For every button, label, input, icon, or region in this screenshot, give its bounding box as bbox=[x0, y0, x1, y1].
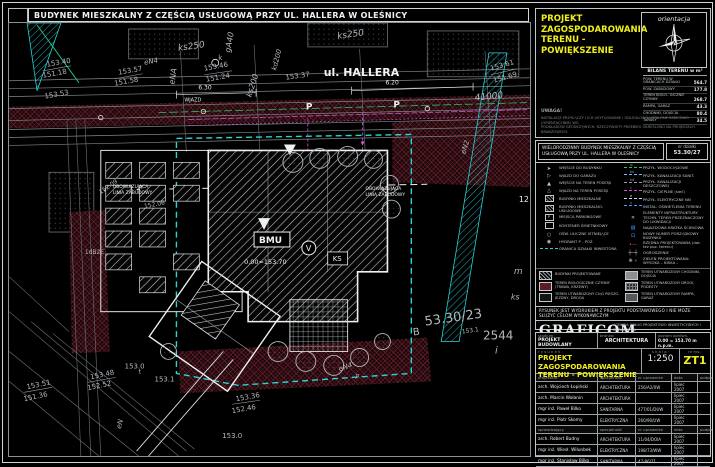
legend-item-label: ZIELEŃ PROJEKTOWANA: WYSOKA – NISKA – bbox=[643, 257, 707, 265]
legend-item: cPRZYŁ. CIEPLNE (sieć) bbox=[623, 189, 707, 196]
legend-column-left: ➤WEJŚCIE DO BUDYNKU▷WJAZD DO GARAŻU▲WEJŚ… bbox=[539, 165, 623, 266]
square-open-icon bbox=[539, 222, 559, 231]
compass-rose-icon bbox=[654, 23, 694, 63]
people-header-row: projektant specjalność nr uprawnień data… bbox=[536, 374, 710, 382]
map-label: 153.51 bbox=[26, 378, 51, 391]
legend-item: ✕ELEMENTY INFRASTRUKTURY TECHN. TEREN PR… bbox=[623, 211, 707, 224]
legend-item-label: PRZYŁ. KANALIZACJI DESZCZOWEJ bbox=[643, 180, 707, 188]
map-label: OBOWIĄZUJĄCA bbox=[366, 186, 403, 192]
level-cell: poziom porówn. 0.00 = 153.70 m n.p.m. bbox=[656, 333, 710, 348]
line-icon: kd bbox=[623, 181, 643, 187]
map-label: 153.0 bbox=[222, 432, 242, 440]
x-mark-icon: ✕ bbox=[623, 215, 643, 221]
map-label: eN bbox=[115, 418, 125, 430]
square-p-icon: P bbox=[539, 214, 559, 221]
legend-item: •—RZĘDNA PROJEKTOWANA (dot. też poz. ter… bbox=[623, 241, 707, 249]
legend-item: ○OŚW. ULICZNE ISTNIEJĄCE bbox=[539, 231, 623, 238]
legend-item-label: GRANICA DZIAŁKI INWESTORA bbox=[559, 247, 617, 251]
map-label: 153.1 bbox=[155, 375, 175, 383]
dimension-lines bbox=[176, 83, 473, 99]
circle-hydrant-icon: ◉ bbox=[539, 239, 559, 245]
map-label: V bbox=[306, 244, 312, 253]
legend-item: BUDYNKI MIESZKALNE bbox=[539, 195, 623, 204]
legend-item-label: PRZYŁ. CIEPLNE (sieć) bbox=[643, 190, 685, 194]
stadium-cell: stadium: PROJEKT BUDOWLANY bbox=[536, 333, 598, 348]
swatch-maroon bbox=[539, 282, 552, 291]
swatch-dark bbox=[625, 293, 638, 302]
legend-building-name: WIELORODZINNY BUDYNEK MIESZKALNY Z CZĘŚC… bbox=[538, 143, 664, 160]
map-label: B bbox=[412, 327, 420, 339]
map-label: eNA bbox=[168, 68, 179, 85]
legend-column-right: wPRZYŁ. WODOCIĄGOWEksPRZYŁ. KANALIZACJI … bbox=[623, 165, 707, 266]
triangle-open-icon: △ bbox=[539, 188, 559, 194]
map-label: m bbox=[514, 267, 523, 277]
legend-item: GRANICA DZIAŁKI INWESTORA bbox=[539, 246, 623, 253]
legend-item-label: NAJAZDOWA KRATKA ŚCIEKOWA bbox=[643, 226, 704, 230]
legend-item-label: KONTENER ŚMIETNIKOWY bbox=[559, 224, 608, 228]
panel-title-block: stadium: PROJEKT BUDOWLANY branża: ARCHI… bbox=[535, 332, 711, 457]
sheet-title: BUDYNEK MIESZKALNY Z CZĘŚCIĄ USŁUGOWĄ PR… bbox=[34, 11, 407, 20]
legend-item-label: MIEJSCA PARKINGOWE bbox=[559, 215, 602, 219]
map-label: 12 bbox=[519, 195, 529, 204]
map-label: 153.53 bbox=[44, 89, 69, 101]
legend-item-label: RZĘDNA PROJEKTOWANA (dot. też poz. teren… bbox=[643, 241, 707, 249]
legend-item-label: PRZYŁ. ELEKTRYCZNE NN bbox=[643, 198, 691, 202]
fence-icon: ┼─┼ bbox=[623, 250, 643, 256]
legend-item: ➤WEJŚCIE DO BUDYNKU bbox=[539, 165, 623, 172]
map-label: BMU bbox=[259, 236, 282, 246]
note-title: UWAGA! bbox=[541, 109, 562, 114]
line-icon: e bbox=[623, 197, 643, 203]
map-label: WJAZD bbox=[184, 98, 201, 104]
legend-item-label: INSTAL. OŚWIETLENIA TERENU bbox=[643, 205, 701, 209]
swatch-outline bbox=[539, 293, 552, 302]
orientation-label: orientacja bbox=[642, 15, 706, 23]
arrow-filled-icon: ➤ bbox=[539, 166, 559, 172]
map-label: 153.48 bbox=[90, 368, 115, 381]
map-label: 151.18 bbox=[42, 68, 67, 80]
map-label: 2544 bbox=[483, 329, 513, 343]
legend-item: ❋ ∘ZIELEŃ PROJEKTOWANA: WYSOKA – NISKA – bbox=[623, 257, 707, 265]
legend-item-label: WEJŚCIE NA TEREN POSESJI bbox=[559, 181, 611, 185]
greenery-icon: ❋ ∘ bbox=[623, 258, 643, 264]
surface-swatch-item: TEREN UTWARDZONY DROGI, PODESTY bbox=[625, 282, 707, 291]
map-label: gA40 bbox=[223, 31, 235, 53]
circle-lamp-icon: ○ bbox=[539, 232, 559, 238]
line-icon: c bbox=[623, 189, 643, 195]
map-label: ul. HALLERA bbox=[324, 66, 400, 79]
title-block-person-row: mgr inż. Paweł BilkoSANITARNA477/01/DUWl… bbox=[536, 404, 710, 415]
map-label: P bbox=[306, 103, 313, 113]
plot-number-box: nr działki53.30/27 bbox=[666, 143, 708, 160]
legend-item-label: NOWY NUMER PORZĄDKOWY BUDYNKU bbox=[643, 232, 707, 240]
surface-swatch-item: TEREN UTWARDZONY CHODNIKI, DOJŚCIA bbox=[625, 271, 707, 280]
legend-item-label: BUDYNKI MIESZKALNO-USŁUGOWE bbox=[559, 205, 623, 213]
map-label: 1dB2E bbox=[85, 249, 104, 256]
grate-icon: ▨ bbox=[623, 225, 643, 231]
terrace-grid bbox=[290, 300, 348, 352]
cyan-dash-icon bbox=[539, 247, 559, 253]
orientation-box: orientacja bbox=[641, 12, 707, 68]
legend-item-label: OŚW. ULICZNE ISTNIEJĄCE bbox=[559, 232, 609, 236]
legend-item: KONTENER ŚMIETNIKOWY bbox=[539, 222, 623, 231]
legend-swatches: BUDYNKI PROJEKTOWANETEREN UTWARDZONY CHO… bbox=[536, 268, 710, 304]
balance-header: BILANS TERENU w m² bbox=[643, 69, 707, 76]
map-label: ks200 bbox=[244, 73, 260, 99]
map-label: 153.46 bbox=[203, 61, 228, 73]
legend-item: ⊡NOWY NUMER PORZĄDKOWY BUDYNKU bbox=[623, 232, 707, 240]
map-label: OBOWIĄZUJĄCA bbox=[113, 184, 150, 190]
drawing-number-cell: nr rys.: ZT1 bbox=[680, 349, 710, 373]
title-block-person-row: arch. Robert BudnyARCHITEKTURA11/04/DOIA… bbox=[536, 434, 710, 445]
square-hatch-icon bbox=[539, 205, 559, 214]
square-hatch-icon bbox=[539, 195, 559, 204]
legend-item: ▷WJAZD DO GARAŻU bbox=[539, 173, 623, 180]
legend-header: WIELORODZINNY BUDYNEK MIESZKALNY Z CZĘŚC… bbox=[536, 141, 710, 163]
legend-item-label: WJAZD NA TEREN POSESJI bbox=[559, 189, 608, 193]
map-label: 6.30 bbox=[198, 85, 211, 92]
note-block: UWAGA! INSTALACJE PRZYŁĄCZY I ICH USYTUO… bbox=[541, 97, 707, 134]
legend-item: △WJAZD NA TEREN POSESJI bbox=[539, 188, 623, 195]
arrow-open-icon: ▷ bbox=[539, 173, 559, 179]
map-label: eN4 bbox=[144, 56, 159, 66]
legend-item-label: WEJŚCIE DO BUDYNKU bbox=[559, 166, 602, 170]
title-block-person-row: arch. Wojciech ŁopińskiARCHITEKTURA256/A… bbox=[536, 382, 710, 393]
map-label: k bbox=[218, 54, 222, 62]
legend-item-label: PRZYŁ. WODOCIĄGOWE bbox=[643, 166, 688, 170]
site-plan-drawing: ks250ks250gA40kd200eNAks200eN4153.40151.… bbox=[8, 22, 531, 457]
title-block-person-row: arch. Marcin WołaninARCHITEKTURAlipiec 2… bbox=[536, 393, 710, 404]
map-label: 153.37 bbox=[285, 70, 310, 81]
map-label: 153.0 bbox=[125, 362, 145, 370]
map-label: 6.20 bbox=[385, 80, 398, 87]
swatch-hatch bbox=[539, 271, 552, 280]
disclaimer-text: RYSUNEK JEST WYDRUKIEM Z PROJEKTU PODSTA… bbox=[536, 306, 710, 321]
legend-item: wPRZYŁ. WODOCIĄGOWE bbox=[623, 165, 707, 172]
legend-item-label: ELEMENTY INFRASTRUKTURY TECHN. TEREN PRZ… bbox=[643, 211, 707, 224]
map-label: p bbox=[355, 372, 360, 379]
legend-item: ◉HYDRANT P - POŻ. bbox=[539, 239, 623, 246]
map-label: 151.24 bbox=[205, 71, 231, 83]
map-label: KS bbox=[333, 255, 343, 263]
map-label: LINIA ZABUDOWY bbox=[113, 190, 153, 196]
cad-site-plan-sheet: { "sheet_title": "BUDYNEK MIESZKALNY Z C… bbox=[0, 0, 715, 465]
balance-row: POW. TERENU W GRANICACH DZIAŁKI564.7 bbox=[643, 77, 707, 87]
legend-item-label: BUDYNKI MIESZKALNE bbox=[559, 197, 601, 201]
scale-cell: s k a l a : 1:250 bbox=[642, 349, 680, 373]
map-label: 153.36 bbox=[235, 391, 260, 403]
number-icon: ⊡ bbox=[623, 233, 643, 239]
map-label: 153.1 bbox=[461, 326, 479, 335]
swatch-checker bbox=[625, 282, 638, 291]
drawing-title: PROJEKT ZAGOSPODAROWANIA TERENU - POWIĘK… bbox=[541, 14, 651, 57]
surface-swatch-item: BUDYNKI PROJEKTOWANE bbox=[539, 271, 621, 280]
sheet-title-bar: BUDYNEK MIESZKALNY Z CZĘŚCIĄ USŁUGOWĄ PR… bbox=[28, 8, 529, 22]
swatch-grey bbox=[625, 271, 638, 280]
site-plan-canvas: ks250ks250gA40kd200eNAks200eN4153.40151.… bbox=[9, 23, 530, 456]
title-block-person-row: mgr inż. Piotr SkomyELEKTRYCZNA260/90/UW… bbox=[536, 415, 710, 426]
level-mark-icon: •— bbox=[623, 242, 643, 248]
legend-item: ePRZYŁ. ELEKTRYCZNE NN bbox=[623, 196, 707, 203]
map-label: P bbox=[393, 101, 400, 111]
map-label: 151.36 bbox=[23, 390, 48, 403]
legend-item-label: HYDRANT P - POŻ. bbox=[559, 240, 594, 244]
legend-item-label: PRZYŁ. KANALIZACJI SANIT. bbox=[643, 174, 694, 178]
surface-swatch-item: TEREN UTWARDZONY CIĄG PIESZO-JEZDNY, DRO… bbox=[539, 293, 621, 302]
panel-legend: WIELORODZINNY BUDYNEK MIESZKALNY Z CZĘŚC… bbox=[535, 140, 711, 330]
line-icon: o bbox=[623, 204, 643, 210]
map-label: i bbox=[495, 345, 498, 356]
checker-header-row: sprawdzający specjalność nr uprawnień da… bbox=[536, 426, 710, 434]
drawing-name-cell: r y s u n e k : PROJEKT ZAGOSPODAROWANIA… bbox=[536, 349, 642, 373]
legend-item: PMIEJSCA PARKINGOWE bbox=[539, 214, 623, 221]
branza-cell: branża: ARCHITEKTURA bbox=[598, 333, 656, 348]
legend-item: kdPRZYŁ. KANALIZACJI DESZCZOWEJ bbox=[623, 180, 707, 188]
surface-swatch-item: TEREN UTWARDZONY RAMPA, GARAŻ bbox=[625, 293, 707, 302]
legend-item: ▲WEJŚCIE NA TEREN POSESJI bbox=[539, 180, 623, 187]
map-label: kd200 bbox=[270, 48, 283, 72]
triangle-filled-icon: ▲ bbox=[539, 181, 559, 187]
map-label: LINIA ZABUDOWY bbox=[366, 192, 406, 198]
legend-item-label: OGRODZENIE bbox=[643, 251, 669, 255]
panel-title-orientation: PROJEKT ZAGOSPODAROWANIA TERENU - POWIĘK… bbox=[535, 8, 711, 138]
title-block-person-row: mgr inż. Stanisław BilkoSANITARNA47-86/7… bbox=[536, 456, 710, 467]
surface-swatch-item: TEREN BIOLOGICZNIE CZYNNY (TRAWA, KRZEWY… bbox=[539, 282, 621, 291]
map-label: 153.57 bbox=[118, 65, 143, 77]
map-label: 0.00=153.70 bbox=[244, 258, 286, 266]
map-label: 152.46 bbox=[231, 403, 256, 415]
legend-item: BUDYNKI MIESZKALNO-USŁUGOWE bbox=[539, 205, 623, 214]
map-label: ks bbox=[511, 293, 520, 302]
title-block-person-row: mgr inż. Wiesł. WiłunbekELEKTRYCZNA198/7… bbox=[536, 445, 710, 456]
legend-item-label: WJAZD DO GARAŻU bbox=[559, 174, 596, 178]
